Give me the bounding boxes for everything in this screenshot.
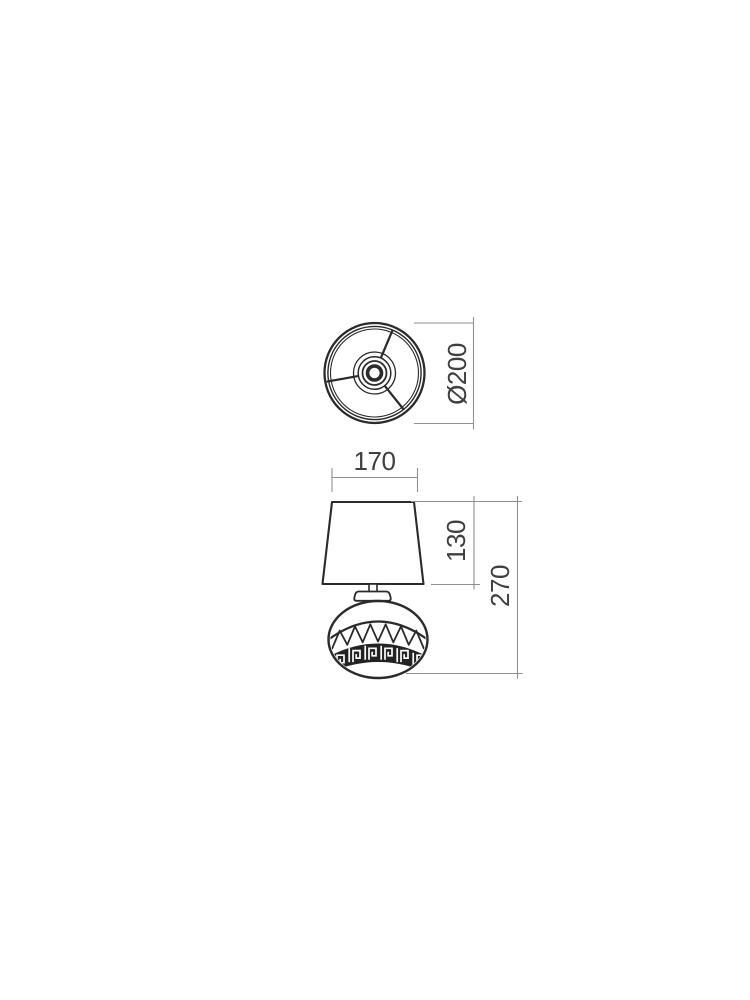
dimension-label-diameter: Ø200 (442, 343, 472, 405)
spoke-upper (381, 331, 392, 357)
shade-inner-rim (328, 326, 421, 419)
dimension-label-total-height: 270 (485, 565, 515, 607)
lamp-front-view (323, 502, 433, 678)
dimension-diameter-200: Ø200 (414, 317, 474, 430)
drawing-canvas: Ø200 170 130 270 (0, 0, 750, 1000)
shade-inner-rim-2 (331, 329, 419, 417)
lamp-socket (368, 366, 382, 380)
shade-outer-rim (325, 323, 425, 423)
spoke-left (328, 376, 358, 381)
spoke-lower-right (385, 386, 403, 408)
dimension-height-130: 130 (431, 496, 480, 590)
hub-ring-outer (354, 352, 396, 394)
lamp-neck-collar (354, 592, 391, 601)
dimension-label-shade-height: 130 (441, 520, 471, 562)
dimension-label-width: 170 (354, 446, 396, 476)
technical-drawing-page: Ø200 170 130 270 (0, 0, 750, 1000)
lamp-top-view (325, 323, 425, 423)
dimension-width-170: 170 (332, 446, 418, 492)
lamp-shade (323, 502, 424, 584)
